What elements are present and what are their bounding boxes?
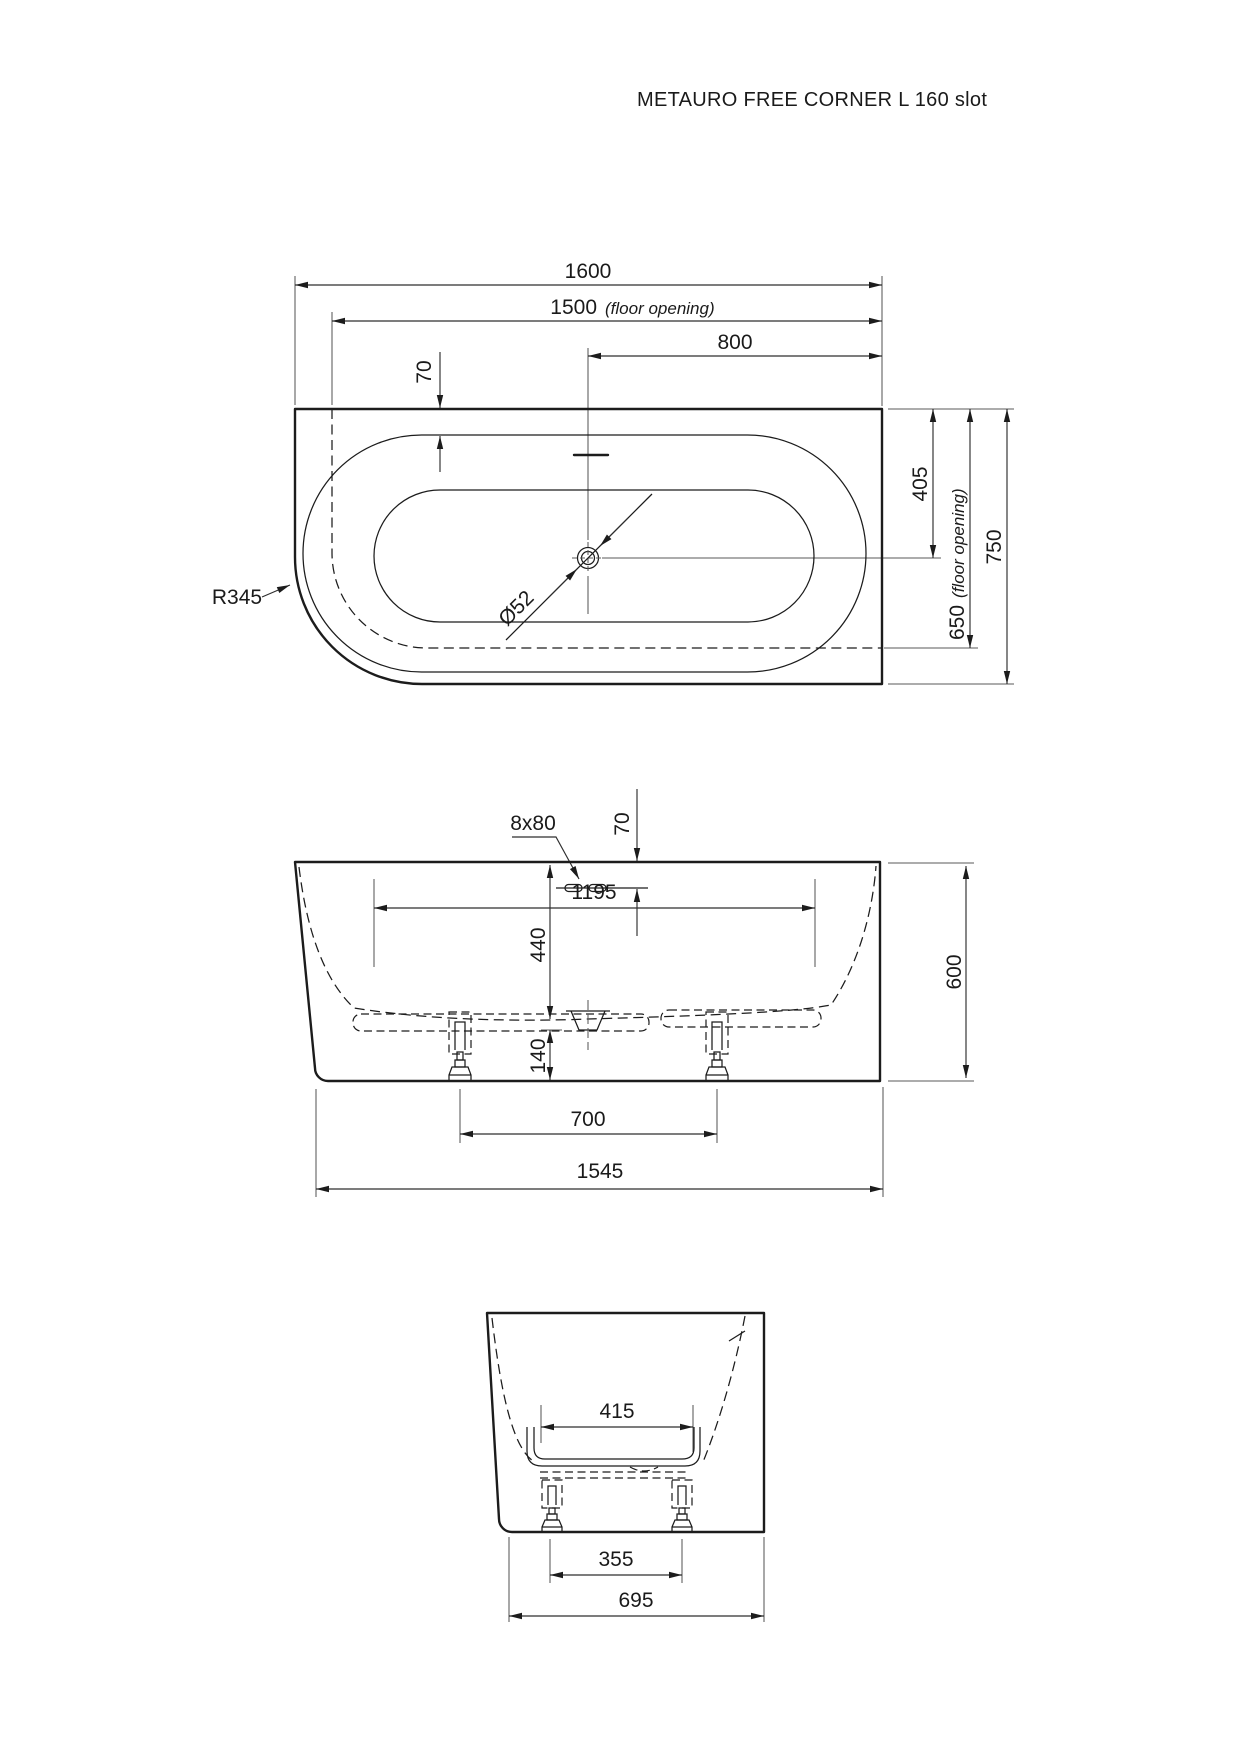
dim-underbody-clearance: 140 — [527, 1038, 550, 1073]
dim-overall-width: 750 — [983, 529, 1006, 564]
dim-inner-floor-width: 415 — [599, 1400, 634, 1423]
dim-feet-spacing-side: 355 — [598, 1548, 633, 1571]
dim-base-length: 1545 — [577, 1160, 624, 1183]
dim-floor-opening-length: 1500 — [550, 296, 597, 319]
support-frame-left — [353, 1014, 649, 1031]
adjustable-foot-front-left — [449, 1012, 471, 1081]
dim-overflow-slot: 8x80 — [510, 812, 556, 835]
drawing-title: METAURO FREE CORNER L 160 slot — [637, 89, 987, 111]
dim-floor-opening-length-note: (floor opening) — [605, 299, 715, 318]
profile-tick — [729, 1331, 745, 1341]
drain-trap-front — [566, 1000, 610, 1050]
technical-drawing: METAURO FREE CORNER L 160 slot — [0, 0, 1241, 1754]
floor-opening-outline — [332, 409, 882, 648]
dim-inner-floor-length: 1195 — [571, 881, 616, 904]
dim-corner-radius: R345 — [212, 586, 262, 609]
tub-inner-profile-side-right — [703, 1316, 745, 1462]
dim-overall-length: 1600 — [565, 260, 612, 283]
floor-shell-inner — [534, 1427, 694, 1459]
dim-feet-spacing-front: 700 — [570, 1108, 605, 1131]
side-view: 415 355 695 — [487, 1313, 764, 1622]
dim-overall-height: 600 — [943, 954, 966, 989]
floor-shell-outer — [527, 1427, 700, 1466]
support-frame-right — [661, 1010, 821, 1027]
corner-radius-leader — [262, 585, 290, 597]
dim-rim-width: 70 — [413, 360, 436, 383]
adjustable-foot-front-right — [706, 1012, 728, 1081]
adjustable-foot-side-left — [542, 1480, 562, 1532]
front-view: 8x80 70 440 1195 140 700 1545 600 — [295, 789, 974, 1197]
top-view: 1600 1500 (floor opening) 800 70 405 650… — [212, 260, 1014, 684]
drawing-page: METAURO FREE CORNER L 160 slot — [0, 0, 1241, 1754]
dim-inner-depth: 440 — [527, 927, 550, 962]
dim-drain-diameter: Ø52 — [494, 586, 538, 630]
dim-drain-to-right: 800 — [717, 331, 752, 354]
tub-rim-edge — [303, 435, 866, 672]
dim-base-width: 695 — [618, 1589, 653, 1612]
adjustable-foot-side-right — [672, 1480, 692, 1532]
dim-slot-offset: 70 — [611, 812, 634, 835]
dim-drain-to-top: 405 — [909, 466, 932, 501]
overflow-slot-leader — [512, 837, 579, 879]
dim-floor-opening-width: 650(floor opening) — [946, 488, 969, 640]
drain-trap-side — [630, 1467, 658, 1471]
